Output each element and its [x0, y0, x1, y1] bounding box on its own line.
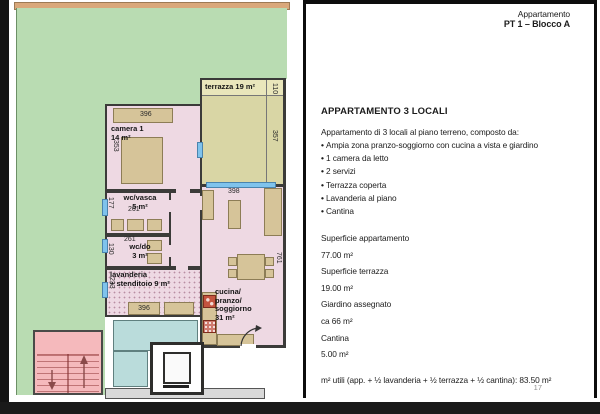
garden-area: [17, 79, 201, 105]
elevator-shaft: [150, 342, 204, 395]
door-opening: [176, 266, 188, 270]
dim-wc-vasca-height: 177: [107, 197, 114, 209]
floor-plan: terrazza 19 m² 110 357: [0, 0, 303, 402]
terrazza-dim-line: [266, 80, 267, 184]
bath-fixture: [111, 219, 124, 231]
feature-item: 1 camera da letto: [321, 152, 538, 165]
area-value: 19.00 m²: [321, 280, 409, 297]
feature-item: Terrazza coperta: [321, 179, 538, 192]
feature-list: Ampia zona pranzo-soggiorno con cucina a…: [321, 139, 538, 218]
dim-lavanderia-width: 396: [138, 305, 150, 312]
wc-doccia-label: wc/do 3 m²: [118, 243, 162, 260]
chair: [265, 269, 274, 278]
bed: [121, 137, 163, 184]
feature-item: Ampia zona pranzo-soggiorno con cucina a…: [321, 139, 538, 152]
chair: [228, 257, 237, 266]
dim-lavanderia-height: 233: [108, 277, 115, 289]
door-opening: [169, 245, 173, 257]
area-label: Giardino assegnato: [321, 296, 409, 313]
elevator-door: [163, 385, 189, 388]
panel-intro: Appartamento di 3 locali al piano terren…: [321, 127, 519, 137]
header-unit: PT 1 – Blocco A: [504, 19, 570, 29]
living-label: cucina/ pranzo/ soggiorno 31 m²: [215, 288, 252, 323]
dim-wc-doccia-height: 130: [107, 243, 114, 255]
dim-terrazza-side: 357: [271, 130, 278, 142]
door-opening: [169, 200, 173, 212]
garden-area: [17, 8, 287, 79]
panel-title: APPARTAMENTO 3 LOCALI: [321, 106, 448, 117]
court-area: [113, 351, 148, 387]
stairs-arrows: [35, 332, 101, 393]
feature-item: Lavanderia al piano: [321, 192, 538, 205]
area-label: Cantina: [321, 330, 409, 347]
laundry-unit: [164, 302, 194, 315]
page-edge-bottom: [0, 402, 600, 414]
terrazza-label: terrazza 19 m²: [202, 83, 255, 92]
feature-item: Cantina: [321, 205, 538, 218]
dim-wc-vasca-width: 261: [128, 206, 140, 213]
area-label: Superficie appartamento: [321, 230, 409, 247]
apartment-header: Appartamento PT 1 – Blocco A: [504, 9, 570, 29]
chair: [228, 269, 237, 278]
bath-fixture: [147, 219, 162, 231]
dim-camera-height: 353: [112, 140, 119, 152]
document-page: terrazza 19 m² 110 357: [0, 0, 600, 414]
lavanderia-label: lavanderia + stenditoio 9 m²: [110, 271, 170, 288]
dining-table: [237, 254, 265, 280]
staircase: [33, 330, 103, 395]
dim-living-height: 761: [275, 252, 282, 264]
description-panel: Appartamento PT 1 – Blocco A APPARTAMENT…: [303, 0, 597, 398]
page-number: 17: [534, 383, 542, 392]
elevator-cab: [163, 352, 191, 384]
sofa: [228, 200, 241, 229]
cabinet: [202, 190, 214, 220]
stairs-up-arrow-icon: [80, 355, 88, 388]
header-label: Appartamento: [504, 9, 570, 19]
dim-terrazza-depth: 110: [271, 83, 278, 94]
door-opening: [176, 189, 190, 193]
garden-boundary-line: [16, 8, 17, 395]
chair: [265, 257, 274, 266]
bath-fixture: [127, 219, 144, 231]
area-label: Superficie terrazza: [321, 263, 409, 280]
area-value: 5.00 m²: [321, 346, 409, 363]
wc-vasca-label: wc/vasca 5 m²: [116, 194, 164, 211]
feature-item: 2 servizi: [321, 165, 538, 178]
panel-footer: m² utili (app. + ½ lavanderia + ½ terraz…: [321, 375, 551, 385]
window-camera: [197, 142, 203, 158]
area-value: ca 66 m²: [321, 313, 409, 330]
stairs-down-arrow-icon: [48, 370, 56, 390]
corridor: [169, 191, 202, 268]
area-value: 77.00 m²: [321, 247, 409, 264]
wall-unit: [264, 188, 282, 236]
dim-living-width: 398: [228, 188, 240, 195]
area-list: Superficie appartamento 77.00 m² Superfi…: [321, 230, 409, 363]
laundry-unit: 396: [128, 302, 160, 315]
entrance-door-swing-icon: [238, 324, 262, 348]
dim-camera-width: 396: [140, 111, 152, 118]
dim-wc-doccia-width: 261: [124, 236, 136, 243]
